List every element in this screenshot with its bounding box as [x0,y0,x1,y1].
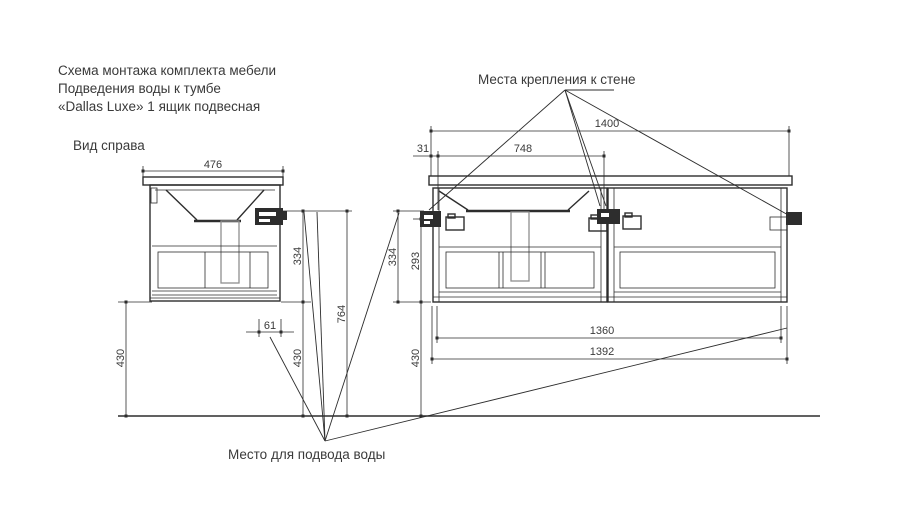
dim-side-61: 61 [264,320,276,332]
front-left-drawer [446,252,594,288]
dim-side-764: 764 [336,305,348,323]
dim-tick [302,301,305,304]
dim-front-1400: 1400 [595,118,619,130]
mount-plate-icon-1 [446,214,464,230]
dim-tick [786,358,789,361]
front-countertop [429,176,792,185]
side-view-label: Вид справа [73,138,145,153]
dim-front-430: 430 [410,349,422,367]
title-block: Схема монтажа комплекта мебели Подведени… [58,63,276,153]
title-line-1: Схема монтажа комплекта мебели [58,63,276,78]
dim-tick [430,155,433,158]
dim-side-width: 476 [204,159,222,171]
front-drain-pipe [511,212,529,281]
side-wall-bracket [255,208,283,225]
dim-front-1360: 1360 [590,325,614,337]
dim-tick [437,155,440,158]
side-view-drawing [143,177,287,301]
dim-front-1392: 1392 [590,346,614,358]
front-right-bracket [786,212,802,225]
water-supply-annotation: Место для подвода воды [228,212,787,462]
dim-tick [603,155,606,158]
dim-front-293: 293 [410,252,422,270]
dim-tick [397,210,400,213]
front-right-drawer [620,252,775,288]
dim-tick [125,301,128,304]
front-right-section [608,188,787,302]
dim-tick [125,415,128,418]
dim-side-430-left: 430 [115,349,127,367]
water-supply-label: Место для подвода воды [228,447,385,462]
side-drawer-box [158,252,268,288]
dim-tick [430,130,433,133]
dimension-ticks [125,130,791,418]
dim-tick [302,210,305,213]
dim-tick [420,415,423,418]
diagram-canvas: Схема монтажа комплекта мебели Подведени… [0,0,900,515]
dim-tick [258,331,261,334]
dim-tick [431,358,434,361]
wall-mount-annotation: Места крепления к стене [429,72,790,216]
mount-plate-icon-3 [623,213,641,229]
dim-tick [142,170,145,173]
front-basin-slant-left [439,191,468,210]
dim-tick [302,415,305,418]
side-countertop [143,177,283,185]
title-line-2: Подведения воды к тумбе [58,81,221,96]
dim-front-31: 31 [417,143,429,155]
title-line-3: «Dallas Luxe» 1 ящик подвесная [58,99,260,114]
dim-tick [397,301,400,304]
dim-tick [788,130,791,133]
wall-mount-label: Места крепления к стене [478,72,636,87]
front-view-dimensions: 1400 748 31 334 293 430 1360 1392 [387,118,789,416]
dim-tick [780,337,783,340]
front-left-section [433,188,607,302]
side-bracket-slot-1 [259,212,276,216]
side-bracket-nub [283,211,287,220]
dim-tick [420,218,423,221]
dim-tick [346,415,349,418]
dim-tick [346,210,349,213]
side-cabinet-body [150,185,280,301]
dim-tick [280,331,283,334]
side-bracket-slot-2 [259,219,270,222]
front-view-drawing [420,176,802,302]
dim-side-430-water: 430 [292,349,304,367]
dim-side-334: 334 [292,247,304,265]
side-basin-slant-left [166,190,197,220]
dim-tick [436,337,439,340]
front-right-bracket-plate [770,217,787,230]
dim-front-748: 748 [514,143,532,155]
dim-front-334: 334 [387,248,399,266]
dim-tick [282,170,285,173]
furniture-mounting-diagram: Схема монтажа комплекта мебели Подведени… [0,0,900,515]
front-basin-slant-right [568,191,589,210]
dim-tick [420,301,423,304]
